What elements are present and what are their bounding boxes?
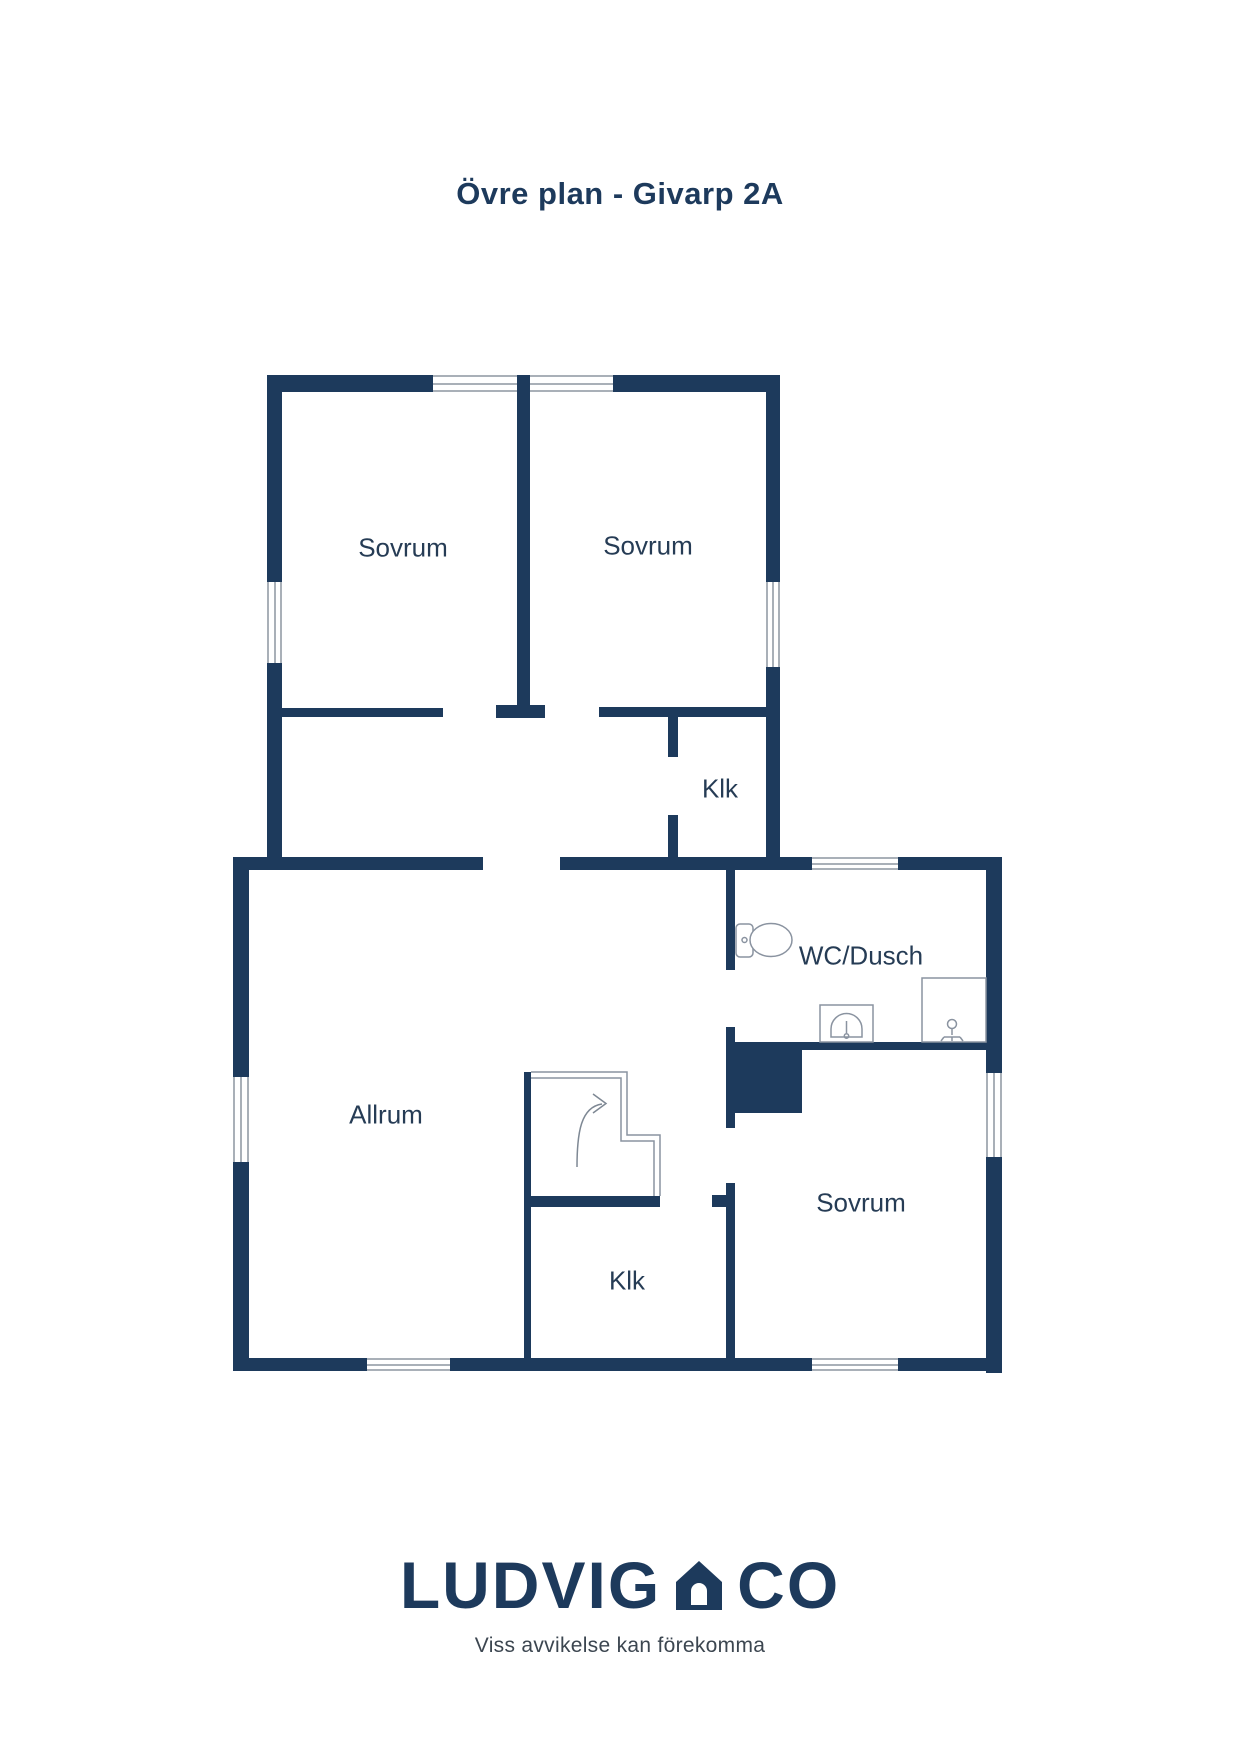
wall-segment	[599, 707, 780, 717]
window	[812, 1358, 898, 1371]
wall-segment	[766, 375, 780, 582]
shower-icon	[922, 978, 986, 1042]
window	[530, 375, 613, 392]
wall-segment	[233, 1358, 367, 1371]
wall-segment	[233, 1162, 249, 1371]
wall-segment	[517, 392, 530, 705]
wall-segment	[496, 705, 545, 718]
toilet-icon	[736, 924, 792, 958]
brand-tagline: Viss avvikelse kan förekomma	[475, 1634, 765, 1658]
stair-wall	[524, 1072, 531, 1371]
wall-segment	[450, 1358, 812, 1371]
wall-segment	[726, 1183, 735, 1358]
wall-segment	[560, 857, 812, 870]
floorplan-page: Övre plan - Givarp 2A	[0, 0, 1240, 1754]
house-icon	[676, 1561, 722, 1610]
room-label-allrum: Allrum	[349, 1100, 423, 1131]
brand-logo: LUDVIG CO	[400, 1552, 840, 1618]
floor-plan: Sovrum Sovrum Klk WC/Dusch Allrum Sovrum…	[0, 0, 1240, 1754]
room-label-sovrum-top-left: Sovrum	[358, 533, 448, 564]
wall-segment	[735, 1042, 1002, 1050]
wall-segment	[712, 1195, 726, 1207]
window	[812, 857, 898, 870]
sink-icon	[820, 1005, 873, 1042]
fixtures-layer	[0, 0, 1240, 1754]
wall-segment	[898, 1358, 1002, 1371]
wall-segment	[668, 815, 678, 858]
room-label-sovrum-bottom: Sovrum	[816, 1188, 906, 1219]
wall-segment	[267, 375, 282, 582]
wall-segment	[668, 717, 678, 757]
wall-segment	[233, 870, 249, 1077]
wall-segment	[898, 857, 1002, 870]
brand-word-co: CO	[737, 1552, 840, 1618]
wall-segment	[517, 375, 530, 392]
stairs-up-arrow	[577, 1094, 606, 1167]
wall-segment	[233, 857, 483, 870]
room-label-wc-dusch: WC/Dusch	[799, 941, 923, 972]
room-label-sovrum-top-right: Sovrum	[603, 531, 693, 562]
stair-wall	[531, 1196, 660, 1207]
wall-segment	[613, 375, 780, 392]
room-label-klk-lower: Klk	[609, 1266, 645, 1297]
wall-segment	[282, 708, 443, 717]
window	[367, 1358, 450, 1371]
wall-segment	[267, 375, 433, 392]
window	[433, 375, 517, 392]
brand-word-ludvig: LUDVIG	[400, 1552, 661, 1618]
brand-footer: LUDVIG CO Viss avvikelse kan förekomma	[0, 1552, 1240, 1658]
window	[766, 582, 780, 667]
stairs	[531, 1072, 660, 1196]
wall-segment	[726, 870, 735, 970]
window	[233, 1077, 249, 1162]
wall-segment	[986, 1157, 1002, 1373]
window	[267, 582, 282, 663]
wall-segment	[766, 667, 780, 870]
room-label-klk-upper: Klk	[702, 774, 738, 805]
window	[986, 1073, 1002, 1157]
chimney-block	[726, 1048, 802, 1113]
wall-segment	[267, 663, 282, 870]
